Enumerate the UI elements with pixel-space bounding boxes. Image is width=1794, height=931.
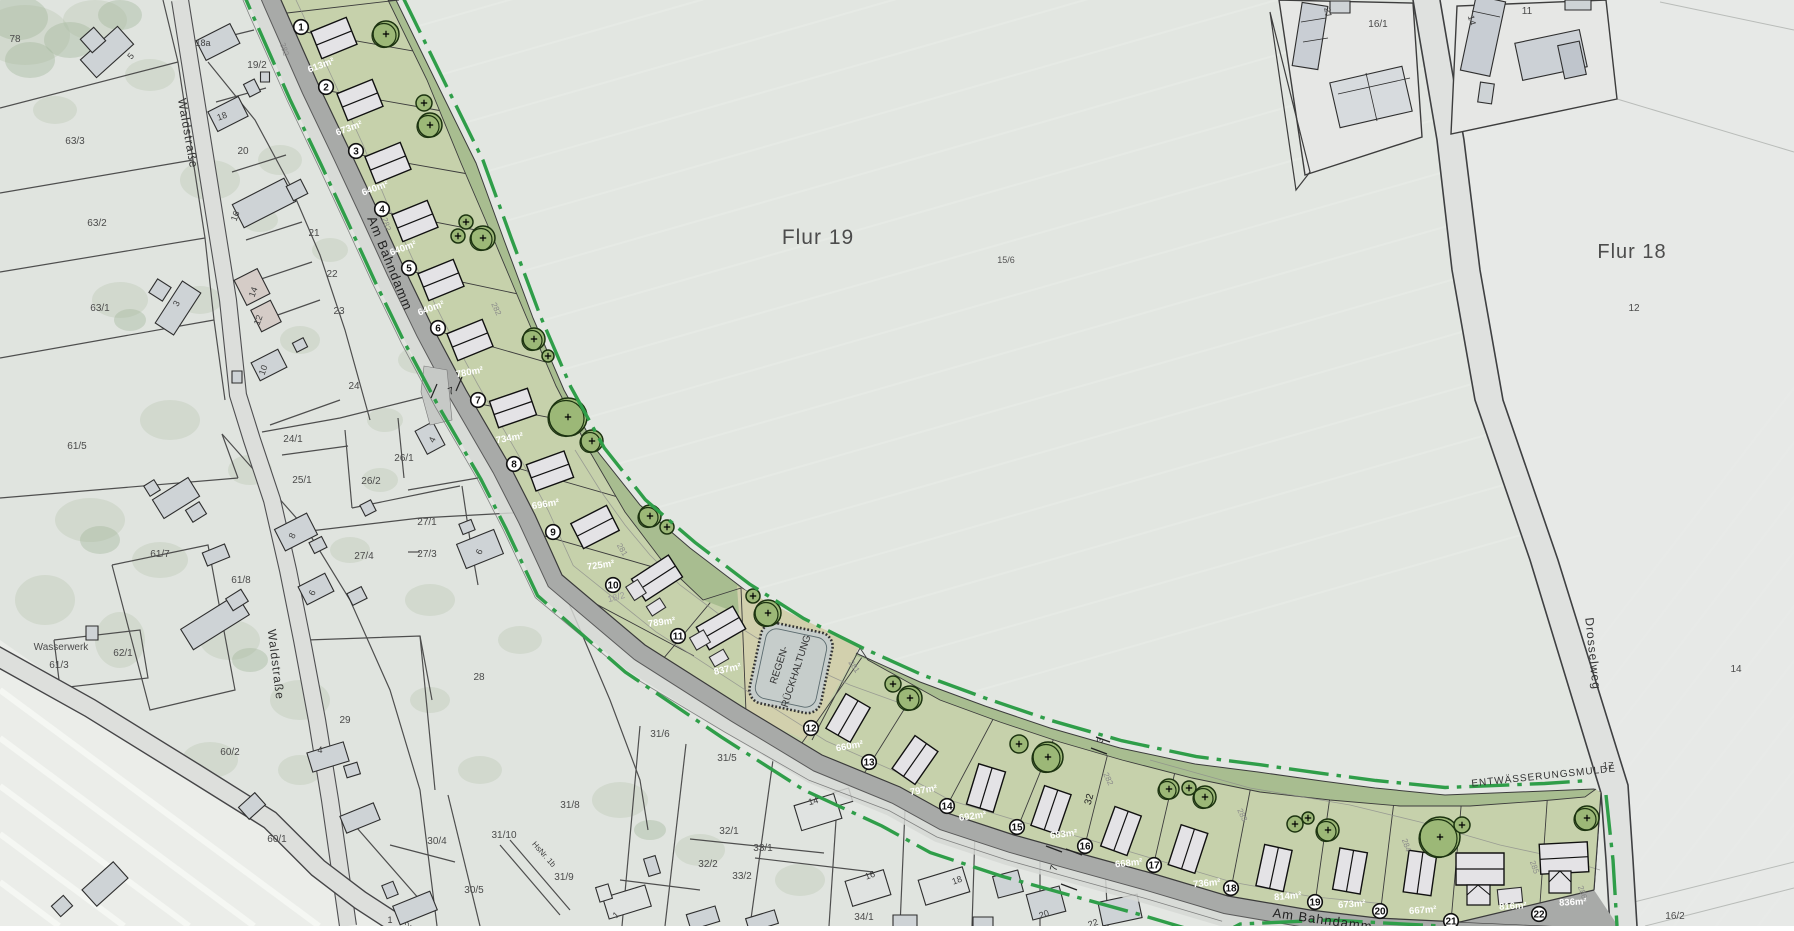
svg-text:26/2: 26/2 xyxy=(361,476,381,487)
svg-text:63/2: 63/2 xyxy=(87,218,107,229)
svg-text:61/5: 61/5 xyxy=(67,441,87,452)
svg-text:19/2: 19/2 xyxy=(247,60,267,71)
svg-text:22: 22 xyxy=(1533,910,1545,921)
svg-text:15: 15 xyxy=(1011,823,1023,834)
svg-text:24/1: 24/1 xyxy=(283,434,303,445)
svg-text:27/3: 27/3 xyxy=(417,549,437,560)
svg-text:19: 19 xyxy=(1309,898,1321,909)
svg-text:32/1: 32/1 xyxy=(719,826,739,837)
svg-text:23: 23 xyxy=(333,306,345,317)
svg-text:3: 3 xyxy=(353,147,359,158)
svg-text:16/2: 16/2 xyxy=(1665,911,1685,922)
svg-text:21: 21 xyxy=(1322,7,1334,19)
svg-text:78: 78 xyxy=(9,34,21,45)
svg-text:16/1: 16/1 xyxy=(1368,19,1388,30)
svg-text:17: 17 xyxy=(1148,861,1160,872)
svg-text:24: 24 xyxy=(348,381,360,392)
svg-text:31/5: 31/5 xyxy=(717,753,737,764)
svg-text:2: 2 xyxy=(323,83,329,94)
svg-text:30/4: 30/4 xyxy=(427,836,447,847)
svg-text:667m²: 667m² xyxy=(1409,904,1437,917)
svg-text:5: 5 xyxy=(406,264,412,275)
svg-text:61/7: 61/7 xyxy=(150,549,170,560)
svg-text:31/8: 31/8 xyxy=(560,800,580,811)
svg-text:16: 16 xyxy=(1079,842,1091,853)
svg-text:9: 9 xyxy=(550,528,556,539)
svg-text:11: 11 xyxy=(673,632,684,643)
svg-text:13: 13 xyxy=(863,758,875,769)
svg-text:14: 14 xyxy=(941,802,953,813)
svg-text:29: 29 xyxy=(339,715,351,726)
svg-text:31/10: 31/10 xyxy=(491,830,516,841)
svg-text:26/1: 26/1 xyxy=(394,453,414,464)
svg-text:Flur 18: Flur 18 xyxy=(1597,241,1666,263)
svg-text:11: 11 xyxy=(1522,6,1533,17)
svg-text:12: 12 xyxy=(805,724,817,735)
svg-text:8: 8 xyxy=(511,460,517,471)
svg-text:27/4: 27/4 xyxy=(354,551,374,562)
svg-text:20: 20 xyxy=(1374,907,1386,918)
svg-text:18a: 18a xyxy=(195,38,210,48)
svg-text:6: 6 xyxy=(435,324,441,335)
svg-text:30/5: 30/5 xyxy=(464,885,484,896)
svg-text:22: 22 xyxy=(326,269,338,280)
svg-text:34/1: 34/1 xyxy=(854,912,874,923)
svg-text:27/1: 27/1 xyxy=(417,517,437,528)
svg-text:12: 12 xyxy=(1628,303,1640,314)
svg-text:28: 28 xyxy=(473,672,485,683)
svg-text:21: 21 xyxy=(308,228,320,239)
svg-text:4: 4 xyxy=(379,205,385,216)
svg-text:673m²: 673m² xyxy=(1338,898,1366,911)
svg-text:60/1: 60/1 xyxy=(267,834,287,845)
svg-text:4: 4 xyxy=(317,745,322,755)
svg-text:17: 17 xyxy=(1602,761,1614,772)
svg-text:31/9: 31/9 xyxy=(554,872,574,883)
svg-text:60/2: 60/2 xyxy=(220,747,240,758)
svg-text:33/2: 33/2 xyxy=(732,871,752,882)
svg-text:61/3: 61/3 xyxy=(49,660,69,671)
svg-text:62/1: 62/1 xyxy=(113,648,133,659)
svg-text:10: 10 xyxy=(607,581,619,592)
svg-text:63/1: 63/1 xyxy=(90,303,110,314)
svg-text:25/1: 25/1 xyxy=(292,475,312,486)
svg-text:Flur 19: Flur 19 xyxy=(782,226,854,249)
svg-text:15/6: 15/6 xyxy=(997,255,1015,265)
svg-text:816m²: 816m² xyxy=(1499,900,1527,912)
svg-text:Wasserwerk: Wasserwerk xyxy=(34,642,90,653)
svg-text:1: 1 xyxy=(298,23,304,34)
svg-text:21: 21 xyxy=(1445,917,1457,926)
svg-text:7: 7 xyxy=(475,396,481,407)
svg-text:31/6: 31/6 xyxy=(650,729,670,740)
svg-text:33/1: 33/1 xyxy=(753,843,773,854)
svg-text:1: 1 xyxy=(387,915,392,925)
svg-text:63/3: 63/3 xyxy=(65,136,85,147)
svg-text:14: 14 xyxy=(1730,664,1742,675)
svg-text:61/8: 61/8 xyxy=(231,575,251,586)
svg-text:18: 18 xyxy=(1225,884,1237,895)
svg-text:20: 20 xyxy=(237,146,249,157)
svg-text:32/2: 32/2 xyxy=(698,859,718,870)
